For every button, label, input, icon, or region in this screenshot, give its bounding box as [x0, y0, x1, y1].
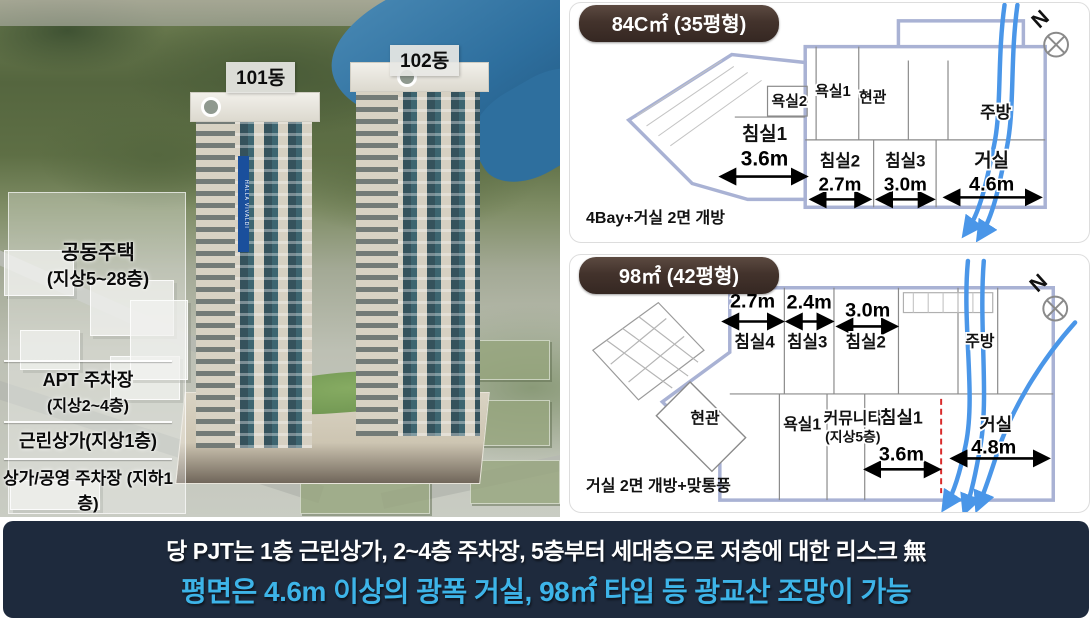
helipad-icon: [201, 97, 221, 117]
room-label-bed1: 침실1: [880, 408, 923, 428]
room-label-living: 거실: [979, 415, 1012, 435]
legend-title: APT 주차장: [0, 366, 176, 392]
dim-label-bed2: 2.7m: [818, 173, 861, 194]
plan-caption-98: 거실 2면 개방+맞통풍: [586, 472, 731, 496]
dim-label-living: 4.6m: [969, 173, 1014, 195]
banner-line2: 평면은 4.6m 이상의 광폭 거실, 98㎡ 타입 등 광교산 조망이 가능: [3, 570, 1089, 610]
room-label-bath1: 욕실1: [815, 83, 851, 100]
building-tag-102: 102동: [390, 45, 459, 76]
plan-badge-84c: 84C㎡ (35평형): [579, 5, 779, 42]
massing-block: [300, 480, 430, 514]
room-label-living: 거실: [974, 150, 1009, 171]
slide: HALLA VIVALDI 101동 102동 공동주택 (지상5~28층) A…: [0, 0, 1092, 621]
room-label-kitchen: 주방: [965, 332, 995, 350]
room-label-bath2: 욕실2: [772, 93, 808, 110]
room-label-entry: 현관: [859, 89, 887, 106]
room-label-bed4: 침실4: [734, 331, 775, 351]
legend-title: 근린상가(지상1층): [0, 427, 176, 453]
room-label-community: 커뮤니티: [824, 410, 882, 428]
tower-face: [196, 118, 235, 448]
summary-banner: 당 PJT는 1층 근린상가, 2~4층 주차장, 5층부터 세대층으로 저층에…: [3, 521, 1089, 618]
zone-sub: (지상5~28층): [18, 265, 178, 291]
legend-row-apt-parking: APT 주차장 (지상2~4층): [0, 362, 176, 421]
floor-legend: APT 주차장 (지상2~4층) 근린상가(지상1층) 상가/공영 주차장 (지…: [0, 360, 176, 517]
floorplan-panel-98: 98㎡ (42평형): [569, 254, 1090, 513]
building-tag-101: 101동: [226, 62, 295, 93]
dim-label-bed3: 3.0m: [884, 173, 927, 194]
tower-101: HALLA VIVALDI: [196, 118, 312, 448]
floorplan-panel-84c: 84C㎡ (35평형): [569, 2, 1090, 243]
dim-label-bed3: 2.4m: [787, 292, 832, 314]
room-label-entry: 현관: [690, 409, 720, 428]
room-label-bed2: 침실2: [820, 151, 860, 171]
tower-face: [398, 88, 480, 436]
tower-sign: HALLA VIVALDI: [238, 156, 249, 252]
room-label-bed3: 침실3: [885, 151, 925, 171]
massing-block: [470, 460, 560, 504]
massing-block: [470, 340, 550, 380]
aerial-rendering: HALLA VIVALDI 101동 102동 공동주택 (지상5~28층) A…: [0, 0, 560, 517]
tower-face: [356, 88, 398, 436]
legend-row-retail: 근린상가(지상1층): [0, 423, 176, 458]
tower-crown: [190, 92, 320, 122]
room-label-bed2: 침실2: [846, 331, 886, 351]
dim-label-bed1: 3.6m: [741, 148, 788, 171]
legend-sub: (지상2~4층): [0, 392, 176, 416]
dim-label-living: 4.8m: [971, 436, 1016, 458]
legend-row-public-parking: 상가/공영 주차장 (지하1층): [0, 460, 176, 517]
legend-title: 상가/공영 주차장 (지하1층): [0, 464, 176, 514]
room-label-bed1: 침실1: [742, 123, 787, 144]
north-cross-icon: [1048, 36, 1065, 53]
zone-label-residential: 공동주택 (지상5~28층): [18, 236, 178, 291]
tower-102: [356, 88, 480, 436]
north-n-label: N: [1027, 6, 1054, 33]
dim-label-bed1: 3.6m: [879, 443, 924, 465]
room-label-kitchen: 주방: [980, 103, 1011, 122]
room-label-bed3: 침실3: [787, 331, 827, 351]
room-label-community-sub: (지상5층): [825, 429, 880, 445]
dim-label-bed2: 3.0m: [845, 300, 890, 322]
room-label-bath1: 욕실1: [783, 416, 821, 434]
plan-badge-98: 98㎡ (42평형): [579, 257, 779, 294]
zone-title: 공동주택: [18, 236, 178, 265]
plan-caption-84c: 4Bay+거실 2면 개방: [586, 204, 725, 228]
banner-line1: 당 PJT는 1층 근린상가, 2~4층 주차장, 5층부터 세대층으로 저층에…: [3, 532, 1089, 566]
